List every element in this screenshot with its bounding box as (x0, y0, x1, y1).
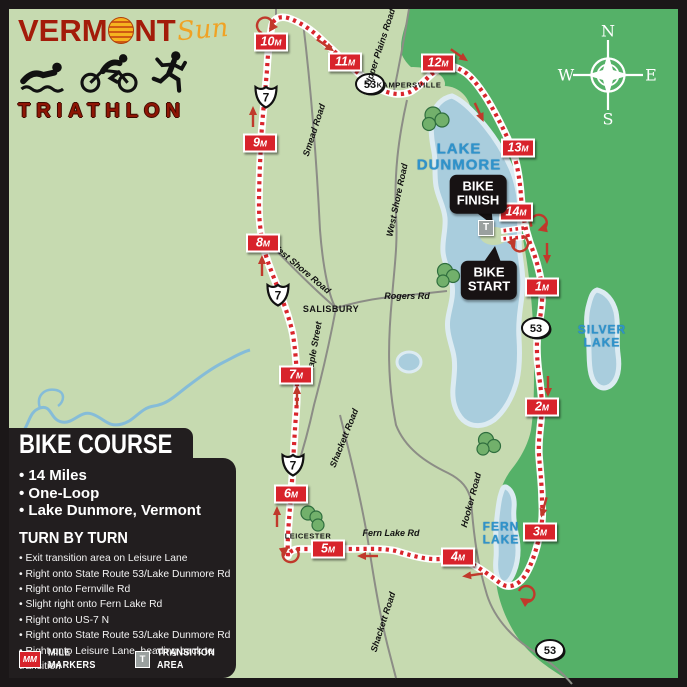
brand-sun-script: Sun (176, 15, 229, 45)
stream-branch (39, 390, 63, 408)
fact-location: • Lake Dunmore, Vermont (19, 502, 236, 520)
direction-step: • Right onto Fernville Rd (19, 582, 236, 597)
direction-step: • Exit transition area on Leisure Lane (19, 551, 236, 566)
bike-start-callout: BIKE START (461, 261, 517, 300)
svg-text:53: 53 (544, 645, 556, 657)
road-rogers-rd: Rogers Rd (384, 291, 430, 301)
stream (20, 350, 250, 436)
svg-text:7: 7 (275, 289, 282, 303)
mile-marker-3: 3M (523, 523, 557, 542)
small-pond (397, 352, 421, 372)
turn-by-turn-title: TURN BY TURN (19, 530, 229, 548)
mile-marker-13: 13M (501, 139, 535, 158)
lake-dunmore-line1: LAKE (417, 141, 502, 157)
svg-text:7: 7 (290, 459, 297, 473)
mile-marker-9: 9M (243, 134, 277, 153)
cyclist-icon (78, 52, 140, 94)
mile-marker-8: 8M (246, 234, 280, 253)
transition-legend-label: TRANSITION AREA (157, 647, 232, 671)
triathlon-bike-course-map: 7 7 7 53 53 (0, 0, 687, 687)
course-facts: • 14 Miles • One-Loop • Lake Dunmore, Ve… (19, 467, 236, 520)
direction-step: • Slight right onto Fern Lake Rd (19, 597, 236, 612)
brand-prefix-text: VERM (18, 15, 108, 46)
panel-title: BIKE COURSE (19, 429, 172, 460)
bike-finish-callout: BIKE FINISH (450, 175, 507, 214)
swimmer-icon (18, 58, 70, 94)
bike-start-line2: START (468, 280, 510, 294)
compass-east-label: E (645, 66, 657, 85)
mile-marker-legend-label: MILE MARKERS (48, 647, 111, 671)
svg-text:7: 7 (263, 91, 270, 105)
transition-legend-icon: T (135, 651, 150, 668)
compass-north-label: N (601, 22, 615, 41)
bike-course-panel: • 14 Miles • One-Loop • Lake Dunmore, Ve… (9, 458, 236, 678)
town-kampersville: KAMPERSVILLE (377, 81, 442, 90)
transition-area-badge: T (478, 220, 494, 236)
town-salisbury: SALISBURY (303, 304, 359, 314)
map-legend: MM MILE MARKERS T TRANSITION AREA (19, 648, 236, 670)
fern-lake-line2: LAKE (483, 533, 520, 546)
mile-marker-5: 5M (311, 540, 345, 559)
fact-distance: • 14 Miles (19, 467, 236, 485)
mile-marker-6: 6M (274, 485, 308, 504)
bike-start-line1: BIKE (468, 266, 510, 280)
fact-loop: • One-Loop (19, 485, 236, 503)
fern-lake-line1: FERN (483, 520, 520, 533)
mile-marker-10: 10M (254, 33, 288, 52)
fern-lake-label: FERN LAKE (483, 520, 520, 545)
mile-marker-4: 4M (441, 548, 475, 567)
lake-dunmore-label: LAKE DUNMORE (417, 141, 502, 173)
silver-lake-line2: LAKE (578, 336, 626, 349)
svg-text:53: 53 (530, 323, 542, 335)
lake-dunmore-line2: DUNMORE (417, 157, 502, 173)
bike-course-panel-tab: BIKE COURSE (9, 428, 193, 460)
mile-marker-legend-icon: MM (19, 651, 41, 668)
bike-finish-line2: FINISH (457, 194, 500, 208)
mile-marker-12: 12M (421, 54, 455, 73)
silver-lake-label: SILVER LAKE (578, 323, 626, 348)
compass-west-label: W (558, 66, 574, 85)
sun-icon (108, 17, 135, 44)
brand-suffix-text: NT (134, 15, 175, 46)
triathlon-title: TRIATHLON (18, 100, 228, 123)
event-logo: VERM NT Sun (18, 12, 228, 123)
brand-wordmark: VERM NT Sun (18, 12, 228, 48)
runner-icon (148, 50, 190, 94)
mile-marker-2: 2M (525, 398, 559, 417)
triathlon-icons (18, 52, 228, 94)
silver-lake-line1: SILVER (578, 323, 626, 336)
mile-marker-11: 11M (328, 53, 362, 72)
mile-marker-1: 1M (525, 278, 559, 297)
compass-south-label: S (603, 110, 614, 129)
direction-step: • Right onto US-7 N (19, 613, 236, 628)
direction-step: • Right onto State Route 53/Lake Dunmore… (19, 567, 236, 582)
road-fern-lake-rd: Fern Lake Rd (362, 528, 419, 538)
direction-step: • Right onto State Route 53/Lake Dunmore… (19, 628, 236, 643)
mile-marker-7: 7M (279, 366, 313, 385)
bike-finish-line1: BIKE (457, 180, 500, 194)
